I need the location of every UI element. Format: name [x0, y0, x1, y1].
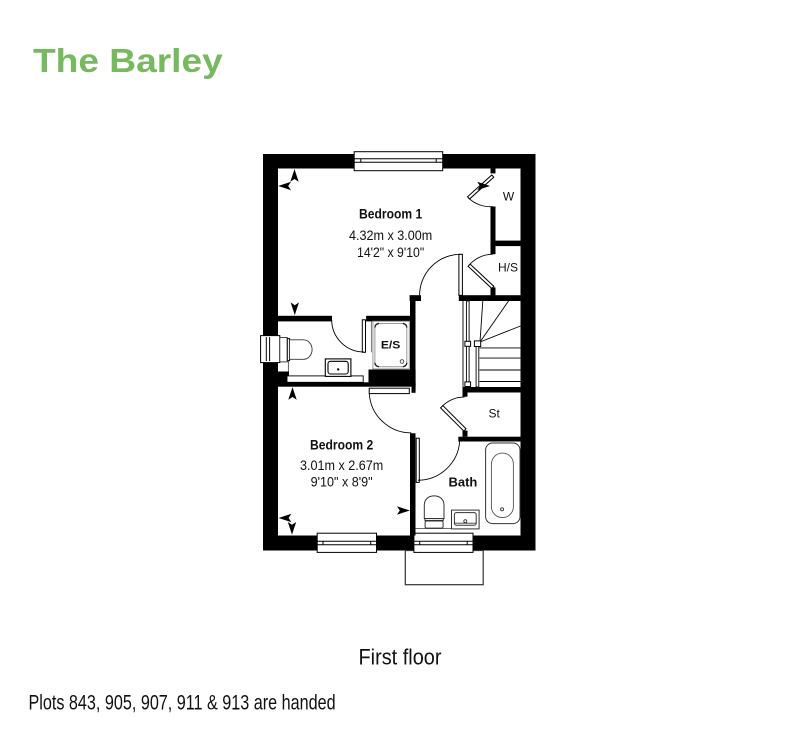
svg-text:First floor: First floor	[358, 646, 441, 670]
svg-text:Plots 843, 905, 907, 911 & 913: Plots 843, 905, 907, 911 & 913 are hande…	[29, 690, 336, 714]
svg-text:Bedroom 2: Bedroom 2	[310, 436, 373, 452]
svg-text:3.01m x 2.67m: 3.01m x 2.67m	[300, 457, 383, 473]
svg-text:St: St	[489, 407, 501, 421]
svg-text:W: W	[503, 190, 515, 204]
svg-text:Bath: Bath	[448, 475, 477, 490]
svg-text:Bedroom 1: Bedroom 1	[359, 206, 422, 222]
svg-text:9'10" x 8'9": 9'10" x 8'9"	[311, 474, 373, 490]
svg-text:H/S: H/S	[498, 261, 518, 275]
svg-text:14'2" x 9'10": 14'2" x 9'10"	[357, 244, 424, 260]
svg-text:E/S: E/S	[381, 340, 401, 351]
svg-text:The Barley: The Barley	[33, 43, 223, 80]
svg-text:4.32m x 3.00m: 4.32m x 3.00m	[349, 227, 432, 243]
